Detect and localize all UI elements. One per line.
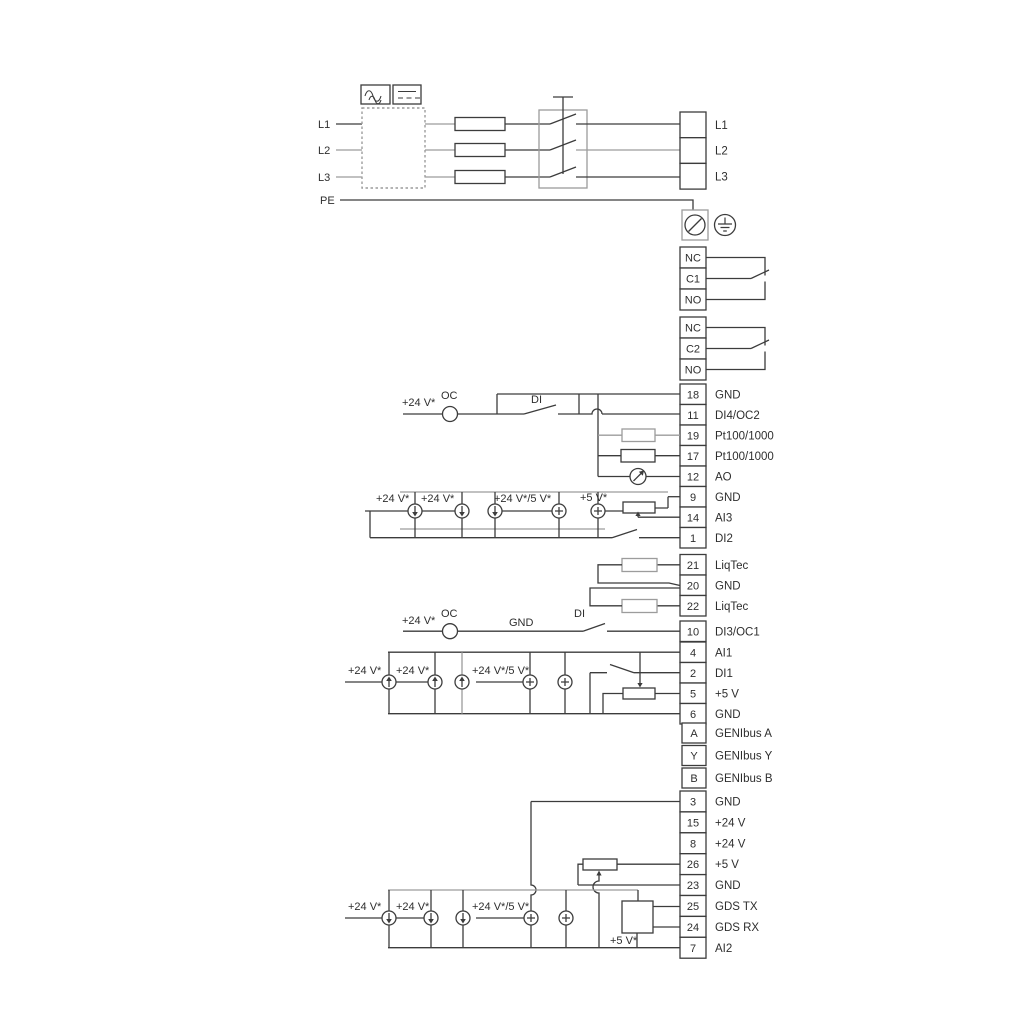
io2-section: 4AI12DI15+5 V6GND +24 V* +24 V* +24 V*/5… <box>345 642 773 788</box>
voltage-source-icon <box>591 504 605 518</box>
v24-label: +24 V* <box>421 493 455 505</box>
mains-terminal-label-L2: L2 <box>715 146 728 158</box>
input-label-pe: PE <box>320 195 335 207</box>
mains-terminal-label-L3: L3 <box>715 171 728 183</box>
io2-terminal-label-4: AI1 <box>715 647 732 659</box>
power-section: L1 L2 L3 PE <box>318 85 736 240</box>
filter-box <box>362 108 425 188</box>
io1-terminal-number-17: 17 <box>687 451 699 463</box>
di-label: DI <box>531 394 542 406</box>
io1-terminal-label-1: DI2 <box>715 533 733 545</box>
liqtec-section: 21LiqTec20GND22LiqTec <box>590 555 748 617</box>
voltage-source-icon <box>524 911 538 925</box>
io3-terminal-number-25: 25 <box>687 901 699 913</box>
relay1-terminal-number-C1: C1 <box>686 274 700 286</box>
io1-terminal-label-17: Pt100/1000 <box>715 451 774 463</box>
io1-section: 18GND11DI4/OC219Pt100/100017Pt100/100012… <box>365 384 774 548</box>
current-source-icon <box>456 911 470 925</box>
liqtec-terminal-number-22: 22 <box>687 601 699 613</box>
io1-terminal-number-18: 18 <box>687 389 699 401</box>
io3-terminal-label-15: +24 V <box>715 817 746 829</box>
current-source-icon <box>455 504 469 518</box>
liqtec-terminal-label-21: LiqTec <box>715 560 748 572</box>
io2-terminal-number-6: 6 <box>690 709 696 721</box>
io1-terminal-label-12: AO <box>715 471 732 483</box>
io1-terminal-number-19: 19 <box>687 430 699 442</box>
relay2-section: NCC2NO <box>680 317 769 380</box>
relay2-terminal-number-C2: C2 <box>686 344 700 356</box>
io3-terminal-label-8: +24 V <box>715 838 746 850</box>
wire-pe <box>340 200 693 210</box>
io1-terminal-label-14: AI3 <box>715 512 732 524</box>
oc-circle-icon <box>443 624 458 639</box>
relay1-terminal-number-NC: NC <box>685 253 701 265</box>
gnd-label: GND <box>509 617 534 629</box>
io1-terminal-number-11: 11 <box>687 410 698 422</box>
di3-terminal-label-10: DI3/OC1 <box>715 626 760 638</box>
fuse-icon-l2 <box>455 144 505 157</box>
io3-terminal-number-24: 24 <box>687 922 699 934</box>
current-source-icon <box>408 504 422 518</box>
io1-terminal-number-1: 1 <box>690 533 696 545</box>
io3-terminal-label-24: GDS RX <box>715 922 759 934</box>
voltage-source-icon <box>558 675 572 689</box>
oc-feed-di4: +24 V* OC <box>402 390 497 422</box>
v24-label: +24 V* <box>376 493 410 505</box>
mains-terminal-box-L2 <box>680 138 706 164</box>
genibus-terminal-label-Y: GENIbus Y <box>715 751 773 763</box>
wiring-diagram-page: L1 L2 L3 PE <box>0 0 1024 1024</box>
pe-terminal-icon <box>682 210 708 240</box>
io3-terminal-number-26: 26 <box>687 859 699 871</box>
io1-terminal-number-9: 9 <box>690 492 696 504</box>
potentiometer-icon <box>603 652 680 714</box>
io2-terminal-number-5: 5 <box>690 688 696 700</box>
v24-label: +24 V* <box>348 901 382 913</box>
v24-label: +24 V* <box>396 901 430 913</box>
io3-terminal-label-7: AI2 <box>715 943 732 955</box>
mains-terminal-box-L3 <box>680 163 706 189</box>
liqtec-terminal-label-22: LiqTec <box>715 601 748 613</box>
sensor-supply-row-1: +24 V* +24 V* +24 V*/5 V* +5 V* <box>365 492 680 538</box>
io3-terminal-number-15: 15 <box>687 817 699 829</box>
current-source-icon <box>424 911 438 925</box>
v24-label: +24 V* <box>402 615 436 627</box>
genibus-terminal-label-A: GENIbus A <box>715 728 772 740</box>
potentiometer-icon <box>623 497 680 518</box>
input-label-l3: L3 <box>318 172 330 184</box>
liqtec-terminal-number-20: 20 <box>687 580 699 592</box>
v24-label: +24 V* <box>396 665 430 677</box>
genibus-terminal-number-B: B <box>690 773 697 785</box>
current-source-icon <box>382 675 396 689</box>
relay1-contact-icon <box>706 258 769 300</box>
current-source-icon <box>428 675 442 689</box>
pt100-resistor-2 <box>598 450 680 463</box>
oc-label: OC <box>441 608 458 620</box>
relay1-terminal-number-NO: NO <box>685 295 702 307</box>
v24-5v-label: +24 V*/5 V* <box>472 665 530 677</box>
main-switch-icon <box>539 97 587 188</box>
io3-terminal-number-8: 8 <box>690 838 696 850</box>
io2-terminal-label-6: GND <box>715 709 741 721</box>
v5-label: +5 V* <box>580 492 608 504</box>
io3-terminal-label-26: +5 V <box>715 859 739 871</box>
earth-ground-icon <box>715 215 736 236</box>
io3-terminal-number-23: 23 <box>687 880 699 892</box>
io1-terminal-label-11: DI4/OC2 <box>715 410 760 422</box>
wires-box-to-fuses <box>425 124 455 177</box>
io2-terminal-number-2: 2 <box>690 668 696 680</box>
liqtec-terminal-number-21: 21 <box>687 560 699 572</box>
io3-terminal-label-25: GDS TX <box>715 901 758 913</box>
fuse-icon-l1 <box>455 118 505 131</box>
io1-terminal-label-19: Pt100/1000 <box>715 430 774 442</box>
voltage-source-icon <box>523 675 537 689</box>
io2-terminal-number-4: 4 <box>690 647 696 659</box>
io1-terminal-number-12: 12 <box>687 471 699 483</box>
di-label: DI <box>574 608 585 620</box>
current-source-icon <box>488 504 502 518</box>
genibus-terminal-number-Y: Y <box>690 751 698 763</box>
dc-symbol-icon <box>393 85 421 104</box>
io3-terminal-number-7: 7 <box>690 943 696 955</box>
current-source-icon <box>382 911 396 925</box>
v24-5v-label: +24 V*/5 V* <box>494 493 552 505</box>
genibus-terminal-label-B: GENIbus B <box>715 773 773 785</box>
wiring-diagram: L1 L2 L3 PE <box>0 0 1024 1024</box>
genibus-terminal-number-A: A <box>690 728 698 740</box>
pt100-resistor-1 <box>598 429 680 442</box>
v5-label: +5 V* <box>610 935 638 947</box>
mains-terminal-label-L1: L1 <box>715 120 728 132</box>
relay1-section: NCC1NO <box>680 247 769 310</box>
liqtec-sensor-2 <box>590 588 680 613</box>
ac-symbol-icon <box>361 85 390 104</box>
io3-terminal-number-3: 3 <box>690 797 696 809</box>
relay2-contact-icon <box>706 328 769 370</box>
voltage-source-icon <box>559 911 573 925</box>
v24-label: +24 V* <box>348 665 382 677</box>
current-source-icon <box>455 675 469 689</box>
relay2-terminal-number-NC: NC <box>685 323 701 335</box>
v24-5v-label: +24 V*/5 V* <box>472 901 530 913</box>
input-label-l2: L2 <box>318 145 330 157</box>
wires-fuses-to-switch <box>505 124 550 177</box>
di3-switch-blade <box>583 624 605 632</box>
liqtec-sensor-1 <box>598 559 680 586</box>
io2-terminal-label-2: DI1 <box>715 668 733 680</box>
v24-label: +24 V* <box>402 397 436 409</box>
di2-switch-blade <box>612 530 637 538</box>
voltage-source-icon <box>552 504 566 518</box>
io2-terminal-label-5: +5 V <box>715 688 739 700</box>
io1-terminal-label-9: GND <box>715 492 741 504</box>
io3-terminal-label-23: GND <box>715 880 741 892</box>
mains-terminal-box-L1 <box>680 112 706 138</box>
oc-circle-icon <box>443 407 458 422</box>
oc-label: OC <box>441 390 458 402</box>
fuse-icon-l3 <box>455 171 505 184</box>
io3-section: 3GND15+24 V8+24 V26+5 V23GND25GDS TX24GD… <box>345 791 759 958</box>
ao-meter-icon <box>598 469 680 485</box>
io3-terminal-label-3: GND <box>715 797 741 809</box>
gds-sensor-box: +5 V* <box>610 890 680 948</box>
io1-terminal-label-18: GND <box>715 389 741 401</box>
relay2-terminal-number-NO: NO <box>685 365 702 377</box>
di-switch-box: DI <box>497 394 680 414</box>
liqtec-terminal-label-20: GND <box>715 580 741 592</box>
gnd-drop <box>531 802 536 948</box>
io1-terminal-number-14: 14 <box>687 512 699 524</box>
input-label-l1: L1 <box>318 119 330 131</box>
di3-terminal-number-10: 10 <box>687 626 699 638</box>
